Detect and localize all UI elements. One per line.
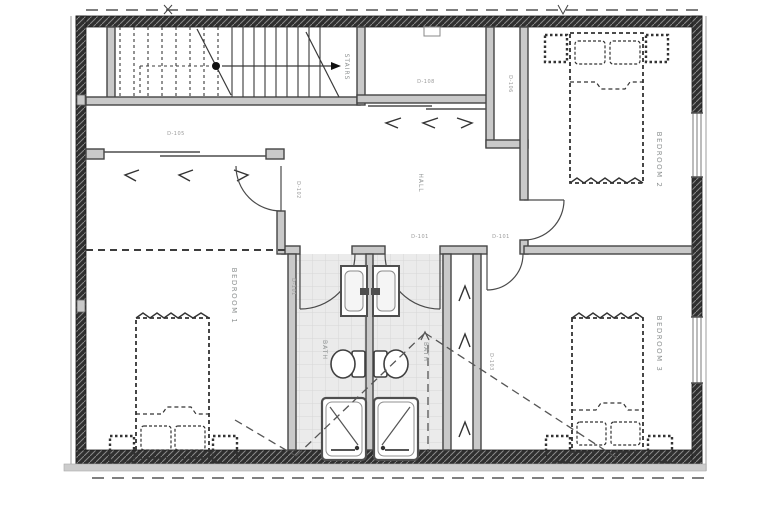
bedroom3-label: BEDROOM 3 xyxy=(655,316,663,373)
faucet-icon xyxy=(360,288,369,295)
bath1-shower xyxy=(322,398,366,460)
drain-icon xyxy=(381,446,385,450)
hall-door-tag-a: D-101 xyxy=(411,234,429,240)
wall-notch xyxy=(424,27,440,36)
bedroom2-label: BEDROOM 2 xyxy=(655,132,663,189)
bath1-vanity-sink xyxy=(341,266,369,316)
bedroom3-closet-tag: D-103 xyxy=(488,353,494,371)
bath2-shower xyxy=(374,398,418,460)
bath2-vanity-sink xyxy=(371,266,399,316)
closet-top-tag: D-108 xyxy=(417,79,435,85)
bedroom3-window xyxy=(691,317,703,383)
bedroom2-window xyxy=(691,113,703,177)
floor-plan-svg: STAIRS HALL BEDROOM 1 BEDROOM 2 BEDROOM … xyxy=(0,0,768,512)
bedroom1-label: BEDROOM 1 xyxy=(230,268,238,325)
bath1-toilet xyxy=(331,350,365,378)
hall-door-tag-b: D-101 xyxy=(492,234,510,240)
linen-tag: D-106 xyxy=(507,75,513,93)
faucet-icon xyxy=(371,288,380,295)
bath1-door-tag: D-101 xyxy=(290,278,296,296)
bedroom1-door-tag: D-102 xyxy=(295,181,301,199)
bath1-label: BATH xyxy=(321,340,328,360)
drain-icon xyxy=(355,446,359,450)
hall-label: HALL xyxy=(417,173,424,192)
bath2-label: BATH xyxy=(422,342,429,362)
closet-left-tag: D-105 xyxy=(167,131,185,137)
stairs-label: STAIRS xyxy=(343,54,350,81)
floor-plan-page: STAIRS HALL BEDROOM 1 BEDROOM 2 BEDROOM … xyxy=(0,0,768,512)
